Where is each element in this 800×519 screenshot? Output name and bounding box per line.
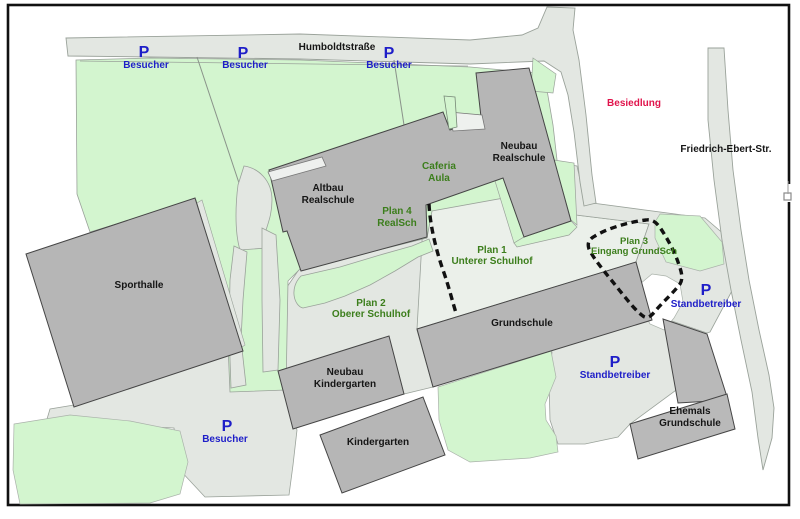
svg-text:P: P <box>610 354 621 371</box>
svg-text:P: P <box>139 44 150 61</box>
svg-text:P: P <box>222 418 233 435</box>
svg-text:Ehemals: Ehemals <box>669 406 711 417</box>
svg-text:Friedrich-Ebert-Str.: Friedrich-Ebert-Str. <box>680 144 771 155</box>
svg-text:Besucher: Besucher <box>222 60 268 71</box>
svg-text:Unterer Schulhof: Unterer Schulhof <box>451 256 533 267</box>
svg-text:Neubau: Neubau <box>501 141 538 152</box>
svg-text:Kindergarten: Kindergarten <box>347 437 409 448</box>
svg-text:Besiedlung: Besiedlung <box>607 98 661 109</box>
svg-text:Standbetreiber: Standbetreiber <box>671 299 742 310</box>
svg-text:Oberer Schulhof: Oberer Schulhof <box>332 309 411 320</box>
svg-text:Altbau: Altbau <box>312 183 343 194</box>
svg-text:Humboldtstraße: Humboldtstraße <box>299 42 376 53</box>
svg-text:Besucher: Besucher <box>202 434 248 445</box>
svg-text:Besucher: Besucher <box>123 60 169 71</box>
svg-text:Besucher: Besucher <box>366 60 412 71</box>
svg-text:Plan 4: Plan 4 <box>382 206 412 217</box>
svg-text:Caferia: Caferia <box>422 161 456 172</box>
svg-text:Kindergarten: Kindergarten <box>314 379 376 390</box>
svg-text:Grundschule: Grundschule <box>659 418 721 429</box>
svg-text:Grundschule: Grundschule <box>491 318 553 329</box>
svg-text:Plan 2: Plan 2 <box>356 298 386 309</box>
svg-text:Standbetreiber: Standbetreiber <box>580 370 651 381</box>
svg-text:Neubau: Neubau <box>327 367 364 378</box>
svg-text:Realschule: Realschule <box>302 195 355 206</box>
svg-text:P: P <box>701 282 712 299</box>
svg-text:RealSch: RealSch <box>377 218 416 229</box>
svg-text:Sporthalle: Sporthalle <box>115 280 164 291</box>
svg-text:Realschule: Realschule <box>493 153 546 164</box>
svg-text:Eingang GrundSch: Eingang GrundSch <box>591 246 677 257</box>
svg-text:Aula: Aula <box>428 173 450 184</box>
svg-text:Plan 1: Plan 1 <box>477 245 507 256</box>
